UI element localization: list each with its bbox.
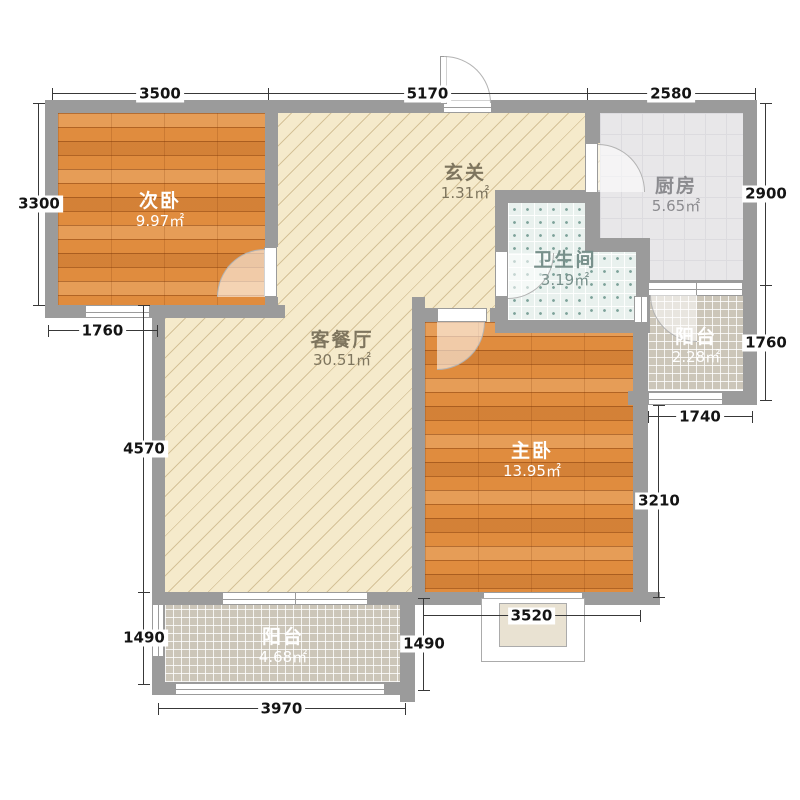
balcony-bottom-window bbox=[175, 683, 385, 695]
entry-hall-label: 玄关1.31㎡ bbox=[415, 162, 515, 203]
wall-bathroom-left-lower bbox=[495, 297, 508, 333]
bottom-balcony-label: 阳台4.68㎡ bbox=[233, 626, 333, 667]
wall-right-outer bbox=[743, 100, 757, 405]
floor-plan: 3500 5170 2580 3300 1760 4570 1490 3970 … bbox=[0, 0, 800, 800]
living-dining-label: 客餐厅30.51㎡ bbox=[282, 329, 402, 370]
dimension-bay: 3520 bbox=[423, 615, 640, 616]
wall-second-bedroom-right-upper bbox=[265, 100, 278, 247]
right-balcony-label: 阳台2.28㎡ bbox=[656, 326, 736, 367]
dimension-bottom-balcony: 3970 bbox=[158, 708, 405, 709]
wall-master-top-a bbox=[412, 308, 437, 322]
dimension-right-balcony: 1760 bbox=[765, 285, 766, 400]
dimension-top-right: 2580 bbox=[587, 93, 755, 94]
wall-bathroom-bottom bbox=[495, 320, 648, 333]
dimension-right-bedroom: 3210 bbox=[658, 405, 659, 597]
master-bedroom-label: 主卧13.95㎡ bbox=[472, 440, 592, 481]
kitchen-label: 厨房5.65㎡ bbox=[626, 175, 726, 216]
dimension-right-kitchen: 2900 bbox=[765, 103, 766, 285]
second-bedroom-window bbox=[85, 305, 150, 318]
master-door-leaf bbox=[437, 308, 487, 322]
kitchen-balcony-window bbox=[648, 282, 743, 296]
kitchen-door-leaf bbox=[585, 143, 598, 193]
dimension-top-left: 3500 bbox=[52, 93, 268, 94]
dimension-right-balcony-bottom: 1740 bbox=[648, 416, 752, 417]
wall-master-bottom-b bbox=[583, 592, 660, 605]
wall-top-left bbox=[45, 100, 443, 113]
wall-master-left bbox=[412, 297, 425, 605]
wall-second-bedroom-right-lower bbox=[265, 297, 278, 318]
wall-second-bedroom-bottom bbox=[45, 305, 285, 318]
second-bedroom-label: 次卧9.97㎡ bbox=[100, 190, 220, 231]
bathroom-balcony-window bbox=[634, 296, 648, 323]
bathroom-label: 卫生间3.19㎡ bbox=[505, 249, 625, 290]
right-balcony-bottom-window bbox=[648, 392, 723, 405]
dimension-top-mid: 5170 bbox=[268, 93, 587, 94]
wall-kitchen-left-upper bbox=[585, 113, 600, 143]
dimension-left-window: 1760 bbox=[48, 330, 157, 331]
wall-top-right bbox=[492, 100, 757, 113]
wall-master-right bbox=[633, 322, 648, 605]
second-bedroom-door-leaf bbox=[264, 247, 277, 297]
dimension-left-lower: 1490 bbox=[143, 592, 144, 684]
living-balcony-slider-window bbox=[222, 592, 368, 605]
dimension-left-mid: 4570 bbox=[143, 305, 144, 592]
dimension-left-upper: 3300 bbox=[38, 103, 39, 305]
